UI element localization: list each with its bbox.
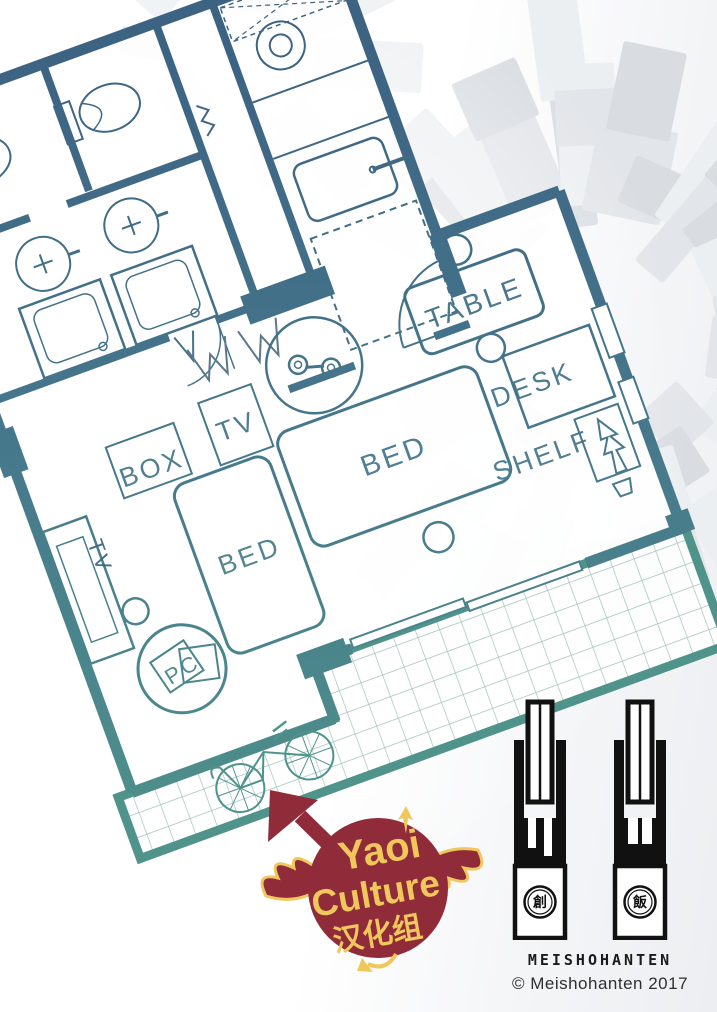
tower-icon: 創 <box>514 702 566 938</box>
tower-icon: 飯 <box>614 702 666 938</box>
copyright-text: © Meishohanten 2017 <box>492 974 708 994</box>
publisher-block: 創 飯 MEISHOHANTEN © Meishohanten 2017 <box>492 698 708 994</box>
yaoi-culture-logo: Yaoi Culture 汉化组 <box>256 788 488 976</box>
seal-glyph: 創 <box>532 894 547 910</box>
publisher-wordmark: MEISHOHANTEN <box>492 951 708 969</box>
page: TABLE BOX TV BED BED DESK SHELF PC TV <box>0 0 717 1012</box>
seal-glyph: 飯 <box>632 894 648 910</box>
meishohanten-towers: 創 飯 <box>492 698 708 940</box>
